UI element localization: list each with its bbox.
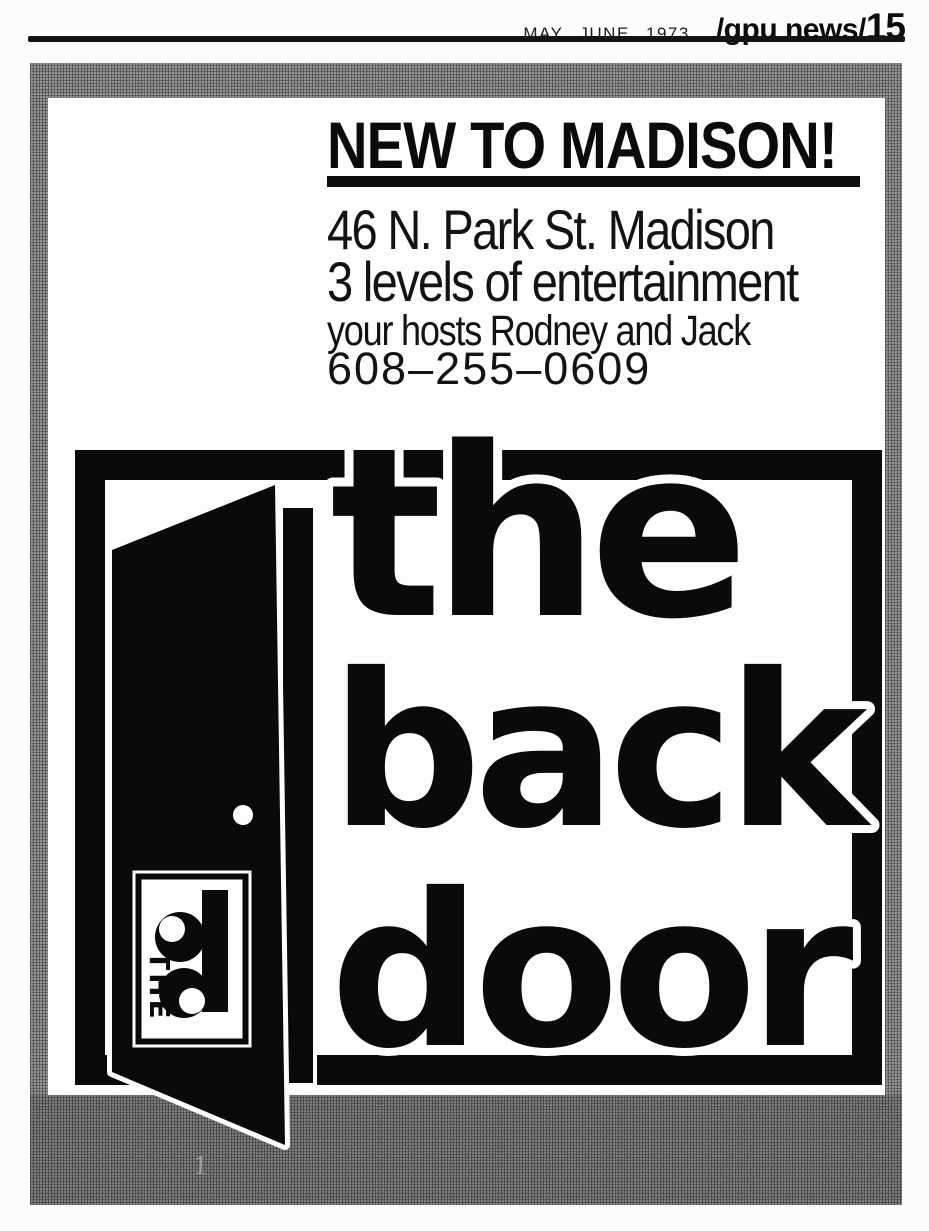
badge-the-text: THE — [143, 951, 176, 1022]
logo-badge: bd THE — [134, 872, 250, 1046]
header-rule — [28, 36, 905, 42]
backdoor-logo: bd THE the back door — [30, 63, 902, 1205]
magazine-page-scan: MAY JUNE 1973 /gpu news/ 15 NEW TO MADIS… — [0, 0, 929, 1231]
doorknob — [233, 805, 253, 825]
logo-word-back: back — [330, 628, 872, 875]
backdoor-advertisement: NEW TO MADISON! 46 N. Park St. Madison 3… — [30, 63, 902, 1205]
logo-word-door: door — [330, 848, 853, 1095]
scan-artifact-mark: 1 — [192, 1152, 209, 1181]
